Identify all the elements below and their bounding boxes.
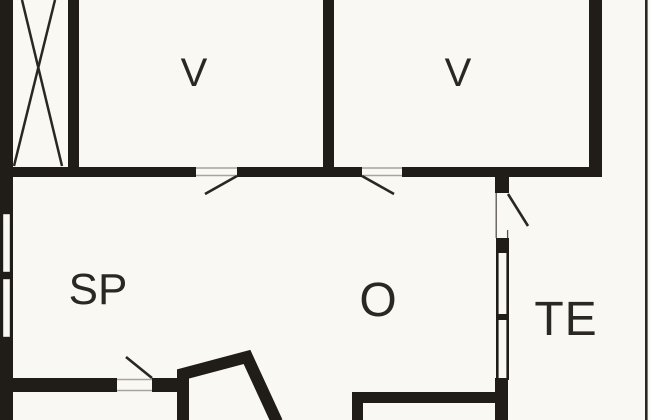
terrace-edge-line: [645, 0, 648, 420]
room-label-v2: V: [445, 53, 472, 93]
door-sp-south-swing: [126, 357, 152, 378]
room-label-sp: SP: [69, 268, 128, 312]
room-label-o: O: [359, 277, 396, 325]
room-label-v1: V: [181, 53, 208, 93]
window-west-upper-icon: [3, 214, 11, 273]
wall-sp-south: [0, 357, 178, 392]
door-to-terrace-swing: [508, 194, 528, 226]
window-west-lower-icon: [3, 279, 11, 338]
floor-plan-drawing: [0, 0, 650, 420]
shaft-crossed-box: [14, 0, 79, 177]
room-label-te: TE: [534, 296, 597, 344]
shaft-cross-line-1: [22, 0, 62, 166]
wall-corner-post: [495, 167, 509, 193]
wall-o-south: [352, 392, 508, 420]
floor-plan: V V SP O TE: [0, 0, 650, 420]
wall-o-te: [495, 167, 528, 420]
shaft-cross-line-2: [14, 0, 55, 166]
wall-main-horizontal: [0, 167, 602, 177]
window-o-te-icon: [496, 253, 509, 380]
bay-walls: [183, 357, 277, 420]
outer-wall-east: [589, 0, 602, 177]
wall-shaft-east: [68, 0, 79, 177]
outer-wall-west: [0, 0, 13, 420]
wall-v1-v2-divider: [323, 0, 334, 177]
door-to-v1-swing: [205, 176, 237, 194]
door-to-v2-swing: [362, 176, 394, 194]
